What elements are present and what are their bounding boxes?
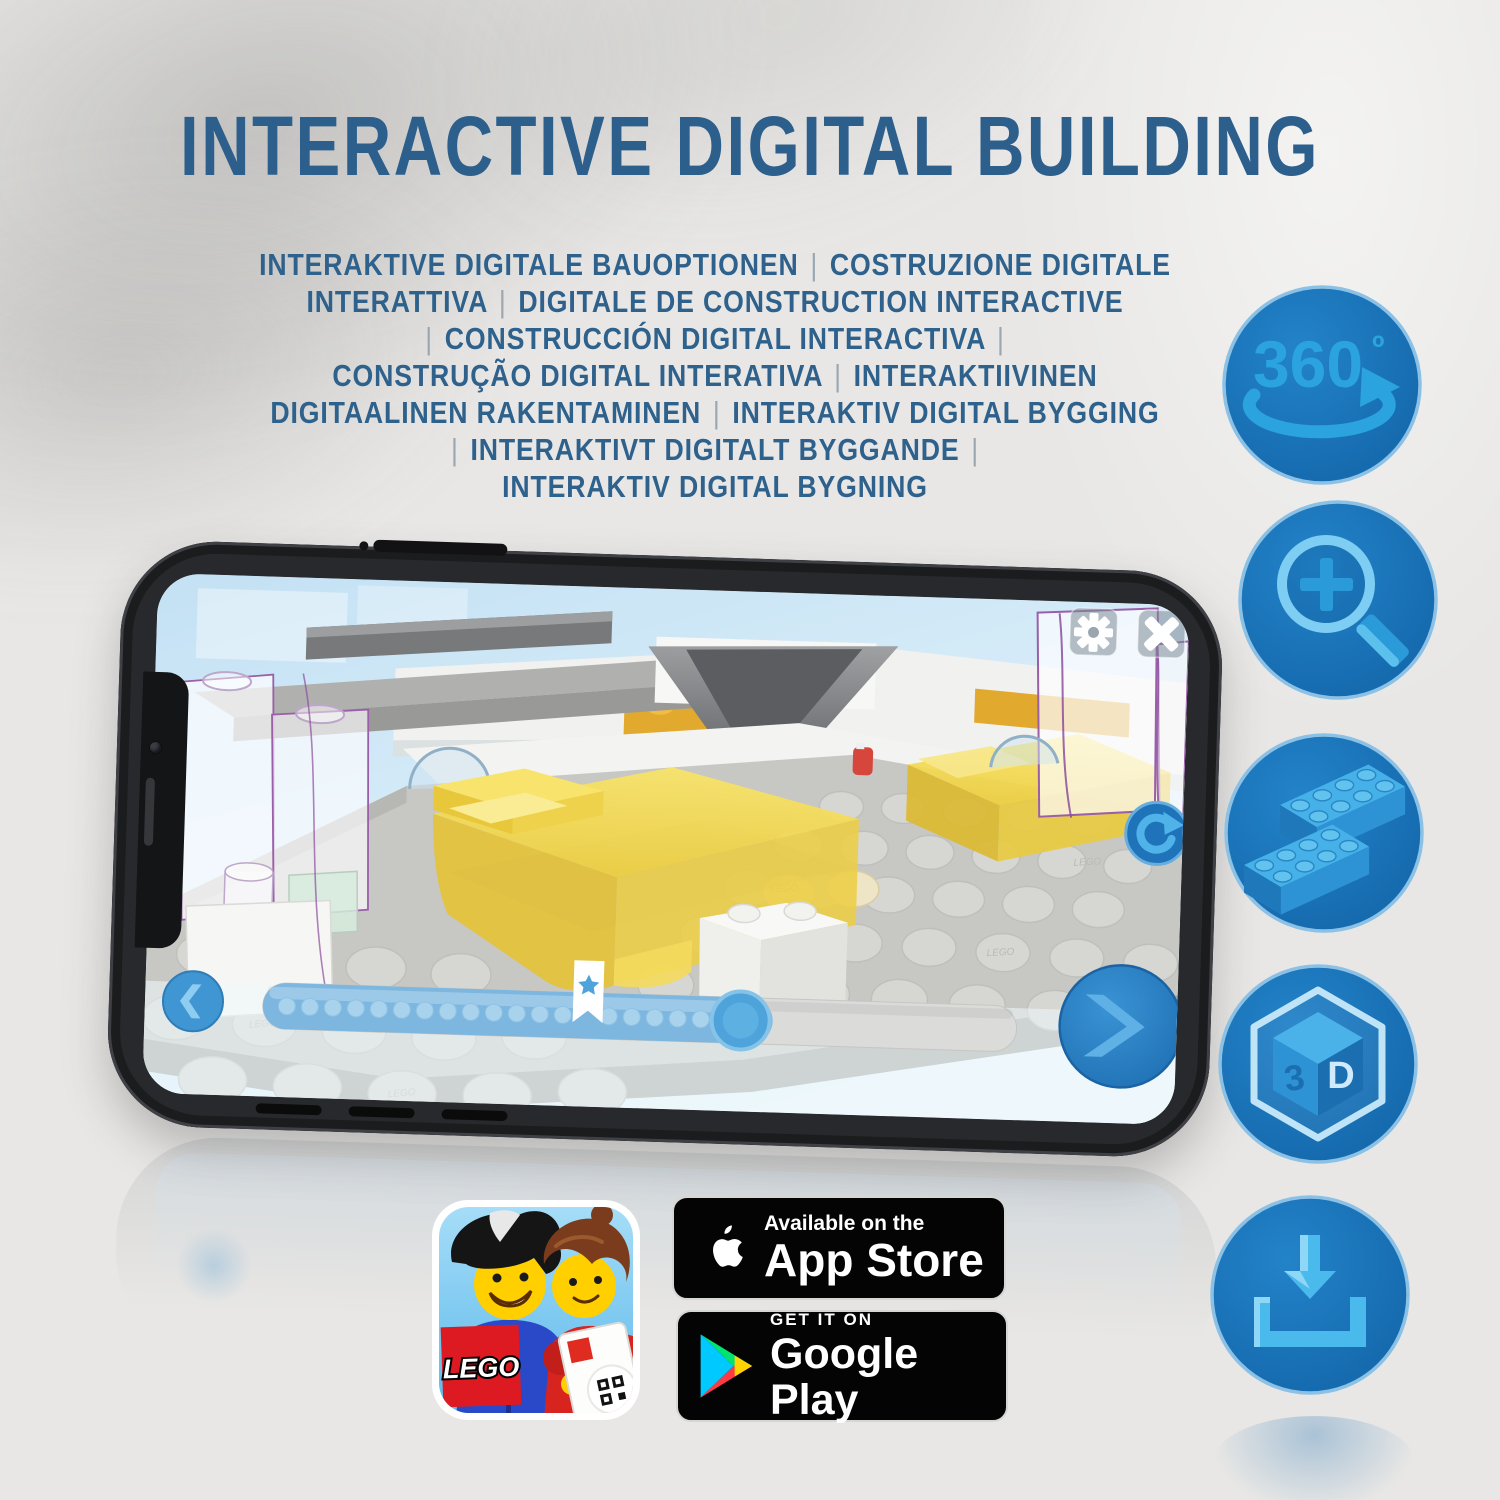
- button-reflection: [176, 1228, 252, 1304]
- brick-options-feature: [1222, 731, 1426, 935]
- 360-view-feature: 360 º: [1220, 283, 1424, 487]
- subtitle-line: | INTERAKTIVT DIGITALT BYGGANDE |: [100, 431, 1330, 468]
- google-play-name: Google Play: [770, 1331, 1006, 1423]
- svg-text:D: D: [1327, 1055, 1354, 1097]
- subtitle-line: | CONSTRUCCIÓN DIGITAL INTERACTIVA |: [100, 320, 1330, 357]
- google-play-tagline: GET IT ON: [770, 1309, 1006, 1331]
- lego-app-promo-page: INTERACTIVE DIGITAL BUILDING INTERAKTIVE…: [0, 0, 1500, 1500]
- svg-text:LEGO: LEGO: [442, 1352, 520, 1385]
- phone-notch: [135, 672, 190, 949]
- subtitle-line: INTERAKTIV DIGITAL BYGNING: [100, 468, 1330, 505]
- subtitle-line: CONSTRUÇÃO DIGITAL INTERATIVA | INTERAKT…: [100, 357, 1330, 394]
- lego-3d-model-render: LEGO LEGO LEGO LEGO LEGO LEGO: [142, 573, 1190, 1125]
- phone-reflection: [113, 1135, 1219, 1384]
- smartphone-mockup: LEGO LEGO LEGO LEGO LEGO LEGO: [105, 539, 1225, 1159]
- icon-reflection: [1212, 1416, 1416, 1500]
- speaker-slot: [441, 1109, 507, 1121]
- google-play-badge[interactable]: GET IT ON Google Play: [676, 1310, 1008, 1422]
- subtitle-line: INTERATTIVA | DIGITALE DE CONSTRUCTION I…: [100, 283, 1330, 320]
- app-store-name: App Store: [764, 1236, 984, 1284]
- previous-step-button[interactable]: [162, 970, 224, 1032]
- subtitle-line: DIGITAALINEN RAKENTAMINEN | INTERAKTIV D…: [100, 394, 1330, 431]
- subtitle-line: INTERAKTIVE DIGITALE BAUOPTIONEN | COSTR…: [100, 246, 1330, 283]
- svg-text:LEGO: LEGO: [986, 947, 1015, 960]
- slider-knob[interactable]: [711, 991, 771, 1051]
- download-feature: [1208, 1193, 1412, 1397]
- svg-text:LEGO: LEGO: [1073, 856, 1102, 869]
- svg-text:º: º: [1372, 329, 1384, 367]
- phone-side-button: [373, 540, 507, 556]
- 3d-view-feature: 3 D: [1216, 962, 1420, 1166]
- lego-logo: LEGO: [441, 1325, 522, 1408]
- google-play-icon: [700, 1332, 754, 1400]
- page-title: INTERACTIVE DIGITAL BUILDING: [150, 98, 1350, 195]
- phone-screen: LEGO LEGO LEGO LEGO LEGO LEGO: [142, 573, 1190, 1125]
- rotate-view-button[interactable]: [1125, 801, 1189, 865]
- 3d-cube-icon: 3 D: [1254, 990, 1382, 1138]
- apple-icon: [696, 1216, 748, 1280]
- lego-builder-app-screen: LEGO LEGO LEGO LEGO LEGO LEGO: [142, 573, 1190, 1125]
- speaker-slot: [348, 1106, 414, 1118]
- lego-builder-app-icon[interactable]: LEGO: [432, 1200, 640, 1420]
- app-store-tagline: Available on the: [764, 1212, 984, 1236]
- zoom-feature: [1236, 498, 1440, 702]
- settings-button[interactable]: [1069, 608, 1117, 656]
- multilingual-subtitle: INTERAKTIVE DIGITALE BAUOPTIONEN | COSTR…: [0, 246, 1430, 505]
- svg-text:360: 360: [1253, 327, 1363, 401]
- app-store-badge[interactable]: Available on the App Store: [672, 1196, 1006, 1300]
- close-button[interactable]: [1137, 610, 1185, 658]
- speaker-slot: [255, 1103, 321, 1115]
